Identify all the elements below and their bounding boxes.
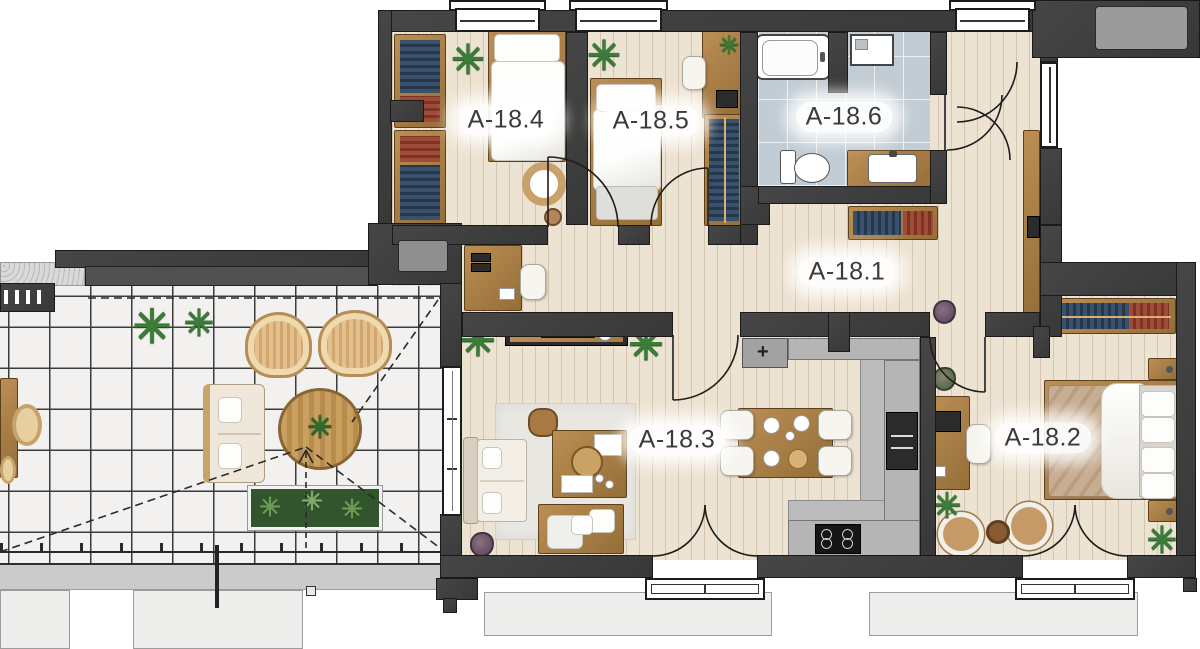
bathtub xyxy=(755,34,831,80)
wall-bedroom2-top xyxy=(1040,262,1196,296)
door-glazing xyxy=(452,371,453,511)
terrace-railing xyxy=(0,551,447,553)
plate xyxy=(763,417,780,434)
wall-bathroom-right xyxy=(930,150,947,204)
utility-shaft xyxy=(1095,6,1188,50)
plant-icon: ✳ xyxy=(341,496,363,522)
shower-drain xyxy=(855,39,868,50)
room-label-a-18-6: A-18.6 xyxy=(796,102,893,133)
bathtub-faucet xyxy=(820,52,825,62)
wall-bath-divider xyxy=(828,32,848,93)
wicker-chair xyxy=(318,310,392,377)
sill-panel xyxy=(651,584,705,594)
plant-icon: ✳ xyxy=(1147,522,1177,558)
sofa-pillow xyxy=(218,397,242,423)
sill-panel xyxy=(1075,584,1129,594)
side-table xyxy=(986,520,1010,544)
wall-kitchen-right xyxy=(920,337,936,556)
sink-faucet xyxy=(889,151,897,157)
room-label-a-18-2: A-18.2 xyxy=(995,423,1092,454)
shower-tray xyxy=(850,34,894,66)
window-glazing xyxy=(1049,67,1051,143)
round-chair xyxy=(1006,502,1052,550)
window xyxy=(575,8,662,32)
glass xyxy=(785,431,795,441)
clothes-rail xyxy=(400,136,440,162)
window xyxy=(455,8,540,32)
plate xyxy=(793,415,810,432)
cooktop xyxy=(815,524,861,554)
laptop xyxy=(934,411,961,432)
desk-books xyxy=(716,90,738,108)
nightstand-knob xyxy=(1166,508,1173,515)
bed-throw xyxy=(596,186,658,220)
wall-stub xyxy=(390,100,424,122)
desk-chair xyxy=(966,424,991,464)
plate xyxy=(763,450,780,467)
wall-bottom xyxy=(440,555,653,578)
wall-right xyxy=(1176,262,1196,578)
terrace-dining-chair xyxy=(0,456,16,484)
wardrobe xyxy=(394,130,446,226)
round-chair xyxy=(522,162,566,206)
fridge-handle xyxy=(891,447,913,449)
wall-hall-living xyxy=(462,312,673,337)
dining-chair xyxy=(720,446,754,476)
toilet-bowl xyxy=(794,153,830,183)
wall-bathroom-right xyxy=(930,32,947,95)
plant-icon: ✳ xyxy=(184,305,214,341)
sill-panel xyxy=(705,584,759,594)
bed xyxy=(488,28,566,162)
floor-plan: + xyxy=(0,0,1200,649)
room-label-a-18-4: A-18.4 xyxy=(458,105,555,136)
daybed-pillow xyxy=(571,515,593,535)
bathtub-basin xyxy=(762,40,818,76)
window-entry-side xyxy=(1040,62,1058,148)
terrace-post xyxy=(215,545,219,608)
terrace-sliding-door xyxy=(442,366,462,516)
plant-icon: ✳ xyxy=(307,413,332,443)
fridge-handle xyxy=(891,435,913,437)
terrace-parapet-inner xyxy=(85,266,378,286)
bed-pillow xyxy=(1141,391,1175,417)
window-glazing xyxy=(460,20,535,22)
daybed xyxy=(538,504,624,554)
nightstand-knob xyxy=(1166,366,1173,373)
wall-corner-step xyxy=(436,578,478,600)
sink xyxy=(868,154,917,183)
plant-icon: ✳ xyxy=(587,36,621,76)
desk-chair xyxy=(682,56,706,90)
outdoor-sofa xyxy=(203,384,265,483)
sofa xyxy=(477,439,527,522)
bench-item xyxy=(1027,216,1040,238)
wall-knob xyxy=(443,598,457,613)
plant-icon: ✳ xyxy=(133,303,172,349)
clothes-rail xyxy=(853,211,901,235)
wicker-chair xyxy=(245,312,312,378)
french-door-sill xyxy=(1015,578,1135,600)
wall-hall-nook xyxy=(985,312,1040,337)
sofa-cushion-split xyxy=(480,480,524,482)
clothes-rail xyxy=(903,211,933,235)
desk-item xyxy=(471,253,491,262)
clothes-rail xyxy=(400,165,440,220)
fridge xyxy=(886,412,918,470)
coffee-table xyxy=(552,430,627,498)
wall-stub xyxy=(1033,326,1050,358)
bed-pillow xyxy=(1141,447,1175,473)
wall-bathroom-bottom xyxy=(758,186,940,204)
vent-slots xyxy=(4,290,48,304)
burner xyxy=(821,538,832,549)
wardrobe xyxy=(1048,298,1176,334)
plant-icon: ✳ xyxy=(451,40,485,80)
wall-entry-right xyxy=(1040,148,1062,225)
wardrobe-rail xyxy=(1053,316,1171,318)
terrace-ledge-band xyxy=(0,563,447,590)
plant-icon: ✳ xyxy=(933,489,962,523)
room-label-a-18-3: A-18.3 xyxy=(629,425,726,456)
plant-icon: ✳ xyxy=(719,34,739,58)
wall-kitchen-stub xyxy=(828,312,850,352)
terrace-marker xyxy=(306,586,316,596)
terrace-dining-chair xyxy=(12,404,42,446)
side-stool xyxy=(544,208,562,226)
plant-icon: ✳ xyxy=(301,488,323,514)
wall-knob xyxy=(1183,578,1197,592)
wall-bottom xyxy=(1127,555,1196,578)
room-label-a-18-5: A-18.5 xyxy=(603,106,700,137)
bed-pillow xyxy=(494,34,560,62)
wall-niche xyxy=(398,240,448,272)
desk-paper xyxy=(499,288,515,300)
sill-panel xyxy=(1021,584,1075,594)
plant-icon: ✳ xyxy=(259,494,281,520)
serving-bowl xyxy=(788,449,808,469)
dining-chair xyxy=(818,446,852,476)
wardrobe-rail xyxy=(724,117,726,223)
sofa-cushion-split xyxy=(218,433,261,435)
entry-bench xyxy=(1023,130,1040,320)
table-cup xyxy=(595,474,604,483)
hall-desk xyxy=(464,245,522,311)
faucet-icon: + xyxy=(757,341,769,364)
kitchen-counter-top xyxy=(788,338,920,360)
bed xyxy=(590,78,662,226)
window-glazing xyxy=(960,20,1025,22)
bed-pillow xyxy=(1141,473,1175,499)
clothes-rail xyxy=(400,40,440,93)
burner xyxy=(842,538,853,549)
table-box xyxy=(561,475,593,493)
table-cup xyxy=(605,480,614,489)
sofa-pillow xyxy=(218,443,242,469)
hall-desk-chair xyxy=(520,264,546,300)
wall-bottom xyxy=(757,555,1023,578)
desk-item xyxy=(471,263,491,272)
wall-between-bedrooms xyxy=(566,32,588,225)
room-label-a-18-1: A-18.1 xyxy=(799,257,896,288)
window-glazing xyxy=(580,20,657,22)
dining-chair xyxy=(818,410,852,440)
coat-rack xyxy=(848,206,938,240)
sofa-pillow xyxy=(482,447,502,469)
french-door-sill xyxy=(645,578,765,600)
wall-left-lower xyxy=(440,283,462,368)
open-wardrobe xyxy=(704,114,744,226)
bed-pillow xyxy=(1141,417,1175,443)
wall-bedrooms-bottom xyxy=(618,225,650,245)
lower-slab xyxy=(0,590,70,649)
window xyxy=(955,8,1030,32)
nightstand xyxy=(1148,358,1178,380)
sofa-pillow xyxy=(482,492,502,514)
